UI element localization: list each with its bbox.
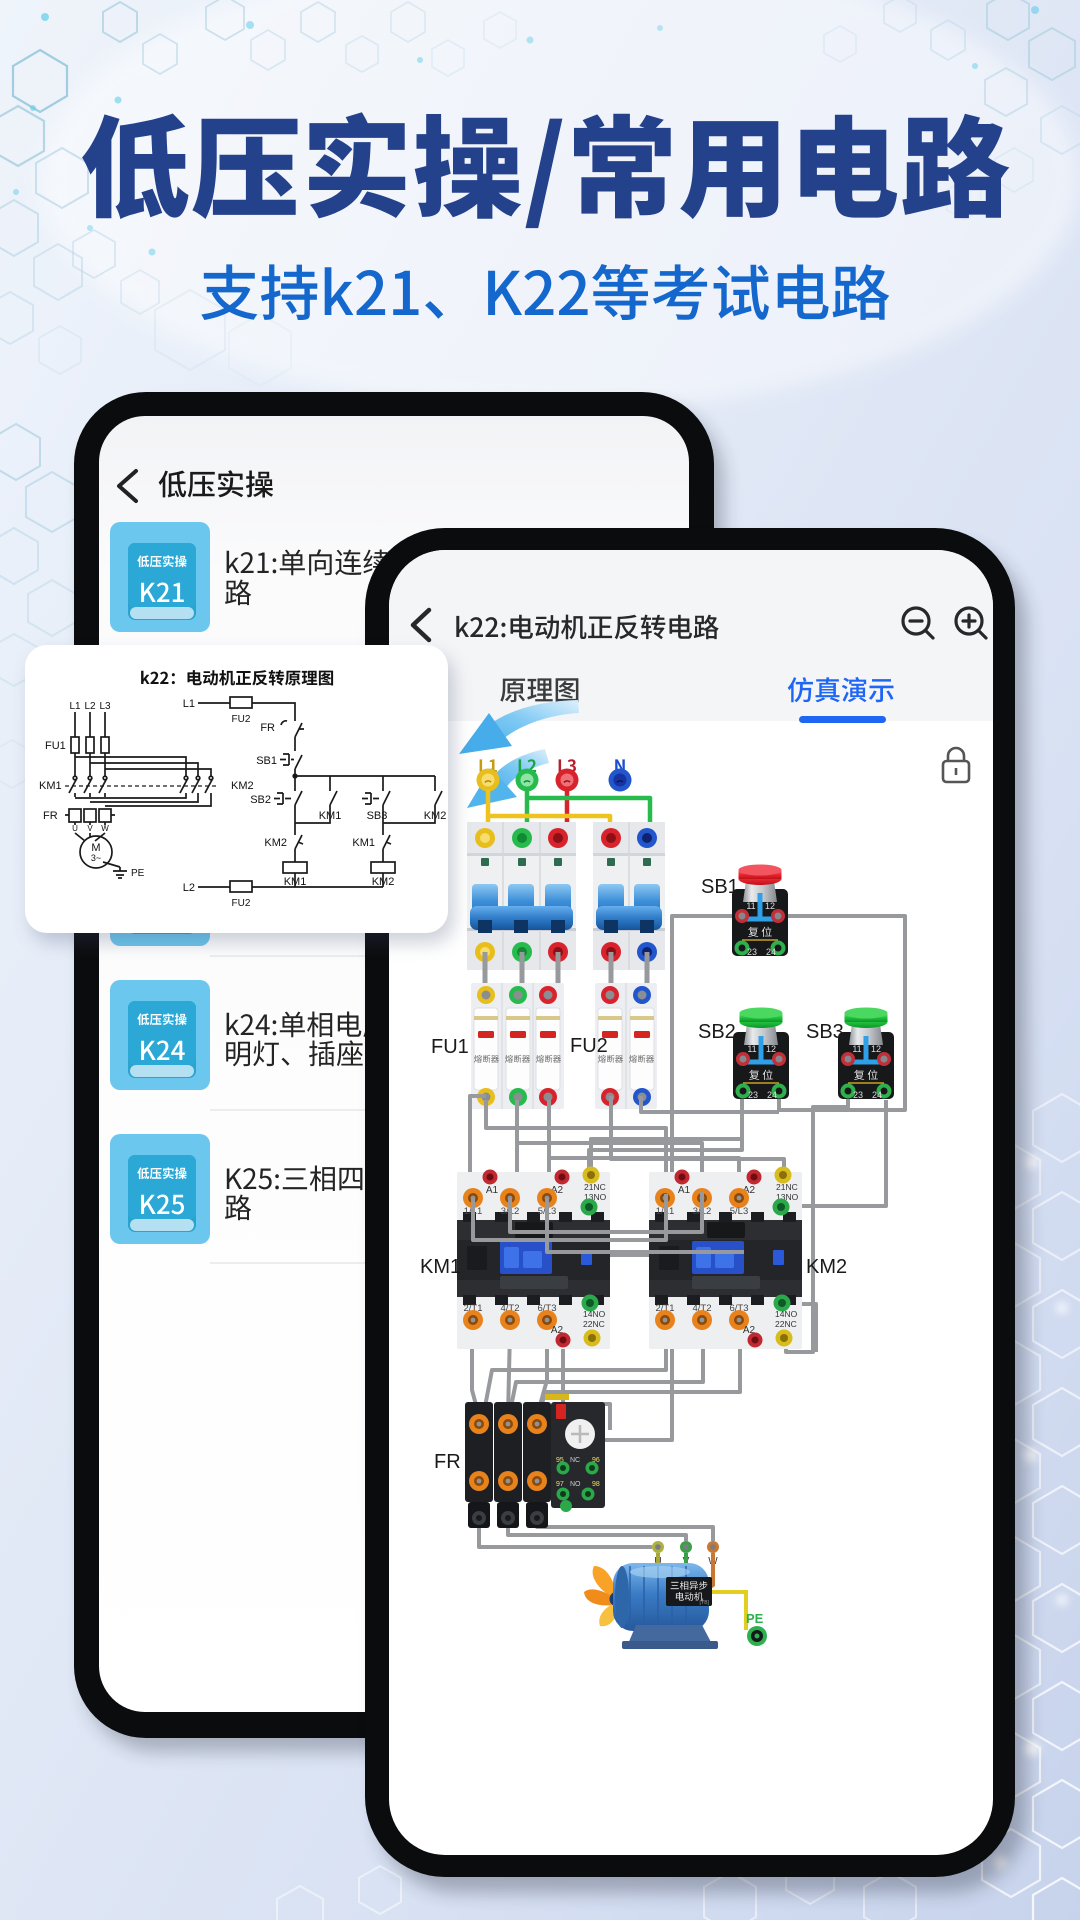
svg-text:FU2: FU2 <box>232 898 251 909</box>
svg-text:23: 23 <box>748 1090 758 1100</box>
svg-text:12: 12 <box>871 1044 881 1054</box>
svg-text:A1: A1 <box>486 1185 499 1196</box>
svg-text:98: 98 <box>592 1481 600 1488</box>
svg-text:L1: L1 <box>69 701 81 712</box>
svg-text:14NO: 14NO <box>775 1309 798 1319</box>
svg-text:14NO: 14NO <box>583 1309 606 1319</box>
svg-text:KM2: KM2 <box>264 837 287 849</box>
svg-text:97: 97 <box>556 1481 564 1488</box>
svg-text:5/L3: 5/L3 <box>730 1206 749 1217</box>
svg-text:11: 11 <box>746 901 755 911</box>
svg-text:FR: FR <box>434 1451 461 1473</box>
svg-text:22NC: 22NC <box>775 1319 797 1329</box>
svg-text:FU1: FU1 <box>45 740 66 752</box>
svg-text:11: 11 <box>747 1044 756 1054</box>
svg-text:FR: FR <box>43 810 58 822</box>
svg-text:21NC: 21NC <box>776 1182 798 1192</box>
svg-text:24: 24 <box>767 1090 777 1100</box>
svg-text:NC: NC <box>570 1457 580 1464</box>
svg-text:KM1: KM1 <box>420 1256 461 1278</box>
svg-text:A1: A1 <box>678 1185 691 1196</box>
svg-text:W: W <box>101 824 109 833</box>
svg-text:KM2: KM2 <box>806 1256 847 1278</box>
svg-text:NO: NO <box>570 1481 581 1488</box>
svg-text:KM1: KM1 <box>352 837 375 849</box>
svg-text:V: V <box>87 824 93 833</box>
svg-text:U: U <box>72 824 78 833</box>
svg-text:KM1: KM1 <box>39 780 62 792</box>
svg-text:SB1: SB1 <box>256 755 277 767</box>
svg-text:FU2: FU2 <box>232 714 251 725</box>
svg-text:L2: L2 <box>183 882 195 894</box>
svg-text:FU2: FU2 <box>570 1035 608 1057</box>
svg-text:L2: L2 <box>84 701 96 712</box>
svg-text:12: 12 <box>765 901 775 911</box>
svg-text:3~: 3~ <box>91 853 101 863</box>
svg-text:L1: L1 <box>183 698 195 710</box>
svg-text:23: 23 <box>747 947 757 957</box>
svg-text:12: 12 <box>766 1044 776 1054</box>
svg-text:SB3: SB3 <box>367 810 388 822</box>
svg-text:21NC: 21NC <box>584 1182 606 1192</box>
svg-text:FR: FR <box>260 722 275 734</box>
svg-text:[YB]: [YB] <box>700 1600 710 1606</box>
svg-text:24: 24 <box>872 1090 882 1100</box>
svg-text:L3: L3 <box>99 701 111 712</box>
svg-text:PE: PE <box>131 868 145 879</box>
svg-text:22NC: 22NC <box>583 1319 605 1329</box>
svg-text:PE: PE <box>746 1611 764 1626</box>
svg-text:SB2: SB2 <box>698 1021 736 1043</box>
svg-text:KM2: KM2 <box>231 780 254 792</box>
svg-text:FU1: FU1 <box>431 1036 469 1058</box>
svg-text:23: 23 <box>853 1090 863 1100</box>
svg-text:SB2: SB2 <box>250 794 271 806</box>
svg-text:11: 11 <box>852 1044 861 1054</box>
svg-text:24: 24 <box>766 947 776 957</box>
